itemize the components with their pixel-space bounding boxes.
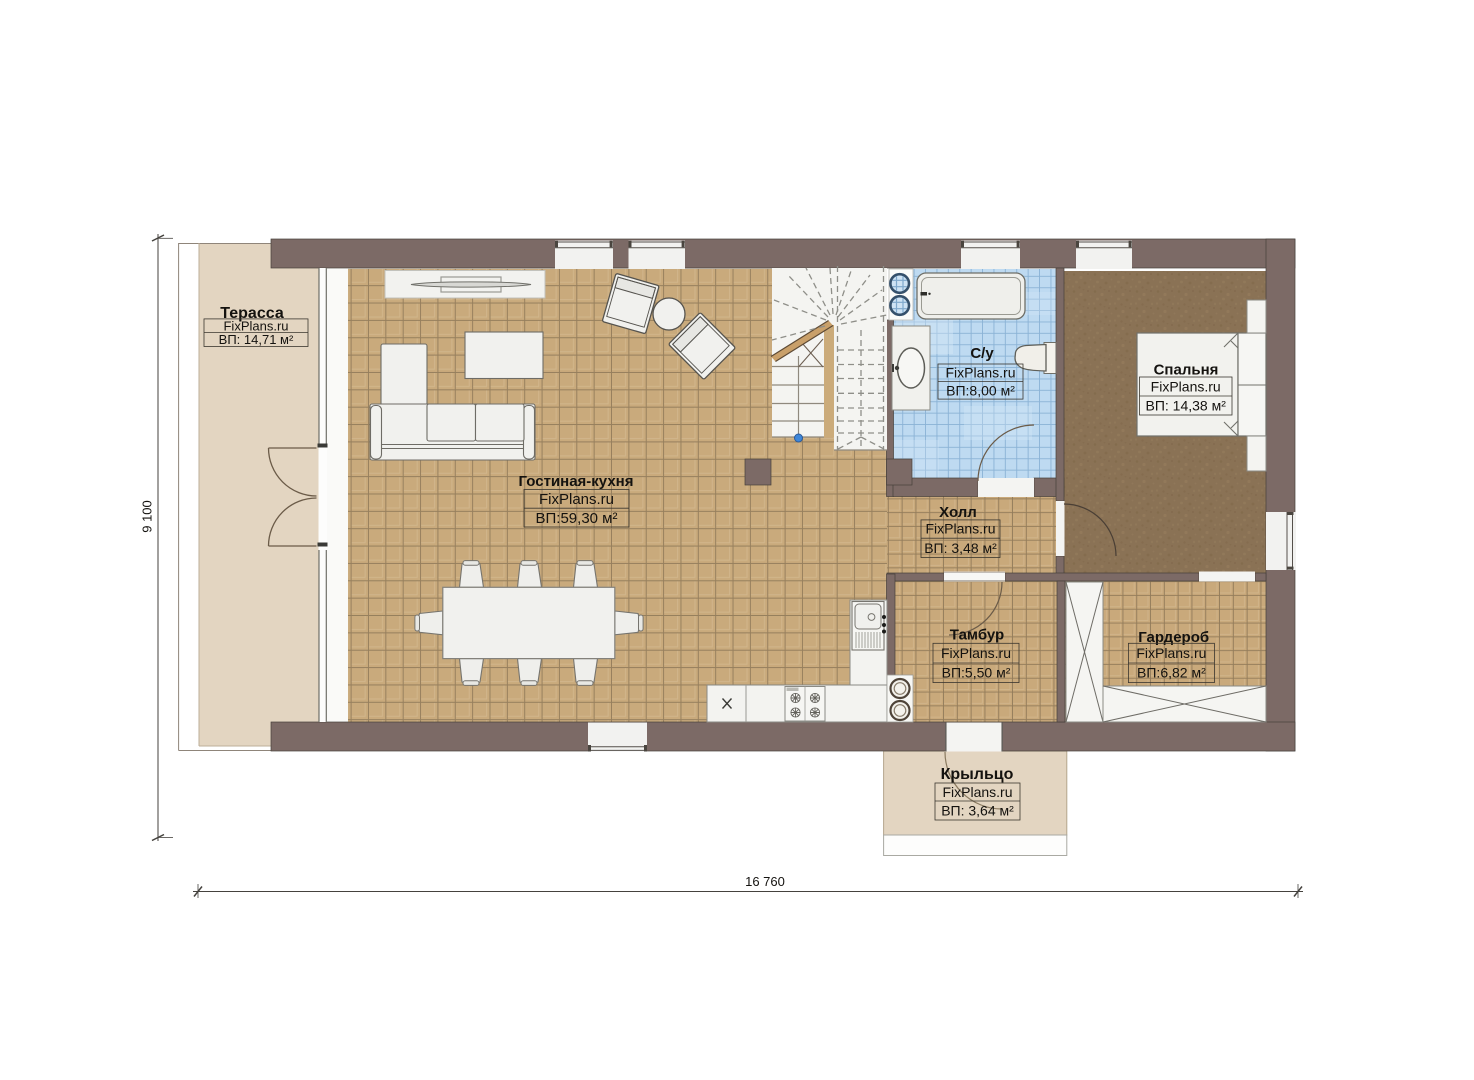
svg-text:ВП:6,82 м²: ВП:6,82 м² [1137, 665, 1206, 681]
svg-text:Крыльцо: Крыльцо [941, 766, 1014, 783]
svg-text:Спальня: Спальня [1154, 361, 1219, 378]
svg-text:9 100: 9 100 [140, 500, 155, 533]
svg-text:FixPlans.ru: FixPlans.ru [925, 521, 995, 537]
svg-text:ВП: 14,38 м²: ВП: 14,38 м² [1146, 397, 1227, 413]
svg-text:FixPlans.ru: FixPlans.ru [941, 645, 1011, 661]
svg-text:FixPlans.ru: FixPlans.ru [539, 491, 614, 508]
svg-text:ВП: 3,48 м²: ВП: 3,48 м² [924, 540, 997, 556]
svg-text:ВП: 3,64 м²: ВП: 3,64 м² [941, 803, 1014, 819]
svg-text:FixPlans.ru: FixPlans.ru [223, 318, 288, 333]
svg-text:Тамбур: Тамбур [950, 626, 1004, 643]
svg-text:Гостиная-кухня: Гостиная-кухня [519, 473, 634, 490]
svg-text:FixPlans.ru: FixPlans.ru [1136, 645, 1206, 661]
svg-text:С/у: С/у [970, 345, 994, 362]
svg-text:FixPlans.ru: FixPlans.ru [1151, 378, 1221, 394]
svg-text:ВП:5,50 м²: ВП:5,50 м² [942, 665, 1011, 681]
svg-text:ВП:8,00 м²: ВП:8,00 м² [946, 382, 1015, 398]
svg-text:16 760: 16 760 [745, 874, 785, 889]
svg-text:FixPlans.ru: FixPlans.ru [945, 365, 1015, 381]
svg-text:ВП: 14,71 м²: ВП: 14,71 м² [219, 332, 294, 347]
svg-text:Холл: Холл [939, 504, 977, 521]
svg-text:FixPlans.ru: FixPlans.ru [942, 784, 1012, 800]
svg-text:ВП:59,30 м²: ВП:59,30 м² [536, 510, 618, 527]
